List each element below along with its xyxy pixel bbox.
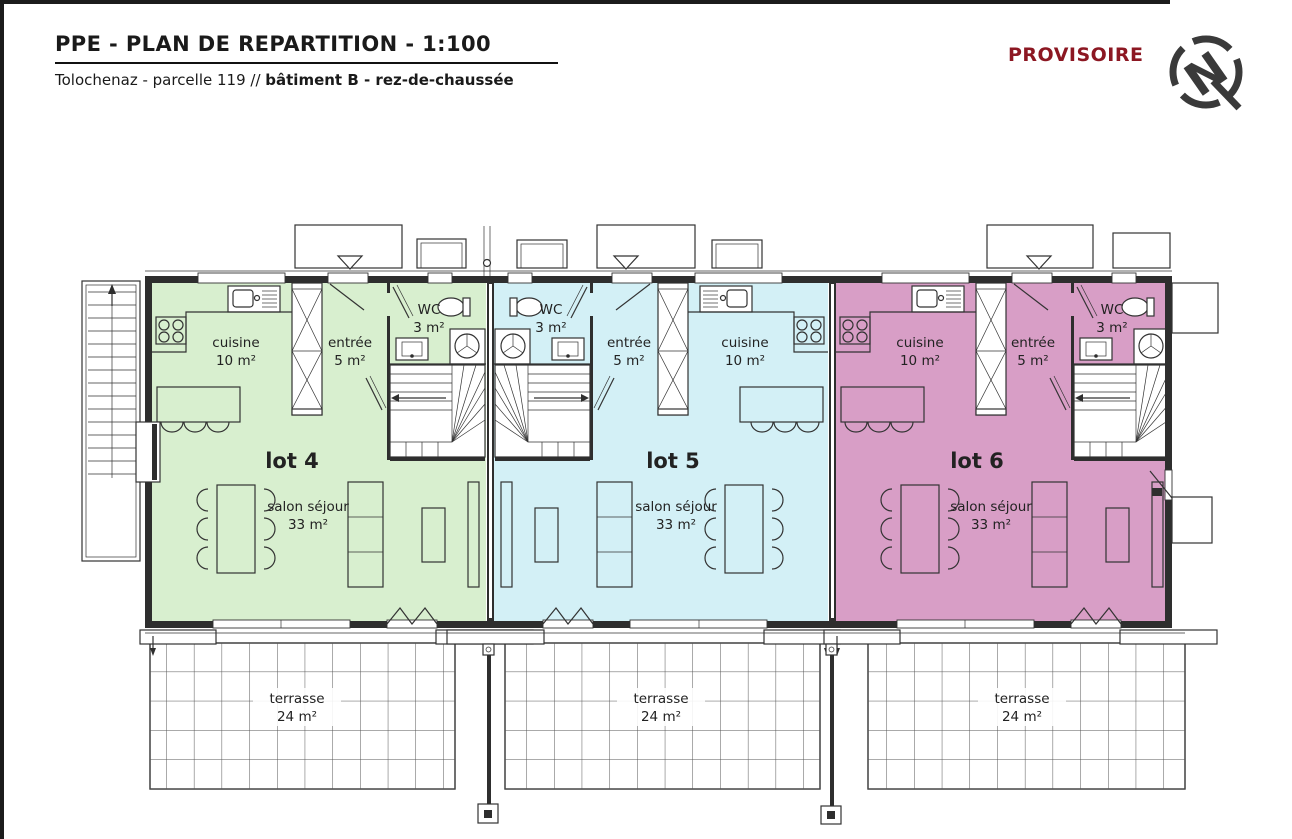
lot6-cuisine-area: 10 m²: [900, 353, 940, 369]
terrace2-label: terrasse: [633, 691, 688, 707]
lot4-entree-label: entrée: [328, 335, 372, 351]
lot6-wc-area: 3 m²: [1096, 320, 1127, 336]
floor-plan: cuisine 10 m² entrée 5 m² WC 3 m² lot 4 …: [0, 0, 1292, 839]
lot5-wc-label: WC: [540, 302, 563, 318]
lot6-salon-label: salon séjour: [950, 499, 1032, 515]
lot4-entree-area: 5 m²: [334, 353, 365, 369]
terrace2-area: 24 m²: [641, 709, 681, 725]
lot5-wc-area: 3 m²: [535, 320, 566, 336]
lot5-entree-label: entrée: [607, 335, 651, 351]
lot6-entree-area: 5 m²: [1017, 353, 1048, 369]
privacy-screen-1: [478, 644, 498, 823]
lot4-cuisine-label: cuisine: [212, 335, 259, 351]
terrace1-area: 24 m²: [277, 709, 317, 725]
lot6-wc-label: WC: [1101, 302, 1124, 318]
privacy-screen-2: [821, 644, 841, 824]
lot5-cuisine-area: 10 m²: [725, 353, 765, 369]
plan-sheet: { "page": { "status": "PROVISOIRE", "nor…: [0, 0, 1292, 839]
lot5-cuisine-label: cuisine: [721, 335, 768, 351]
lot4-wc-label: WC: [418, 302, 441, 318]
lot4-salon-label: salon séjour: [267, 499, 349, 515]
terrace1-label: terrasse: [269, 691, 324, 707]
entrance-porches: [295, 225, 1170, 276]
lot5-entree-area: 5 m²: [613, 353, 644, 369]
lot6-title: lot 6: [950, 449, 1004, 473]
lot6-entree-label: entrée: [1011, 335, 1055, 351]
lot4-cuisine-area: 10 m²: [216, 353, 256, 369]
lot5-salon-label: salon séjour: [635, 499, 717, 515]
terrace3-area: 24 m²: [1002, 709, 1042, 725]
lot6-cuisine-label: cuisine: [896, 335, 943, 351]
lot4-wc-area: 3 m²: [413, 320, 444, 336]
lot5-salon-area: 33 m²: [656, 517, 696, 533]
terrace3-label: terrasse: [994, 691, 1049, 707]
lot4-title: lot 4: [265, 449, 319, 473]
lot4-salon-area: 33 m²: [288, 517, 328, 533]
lot5-title: lot 5: [646, 449, 700, 473]
lot6-salon-area: 33 m²: [971, 517, 1011, 533]
